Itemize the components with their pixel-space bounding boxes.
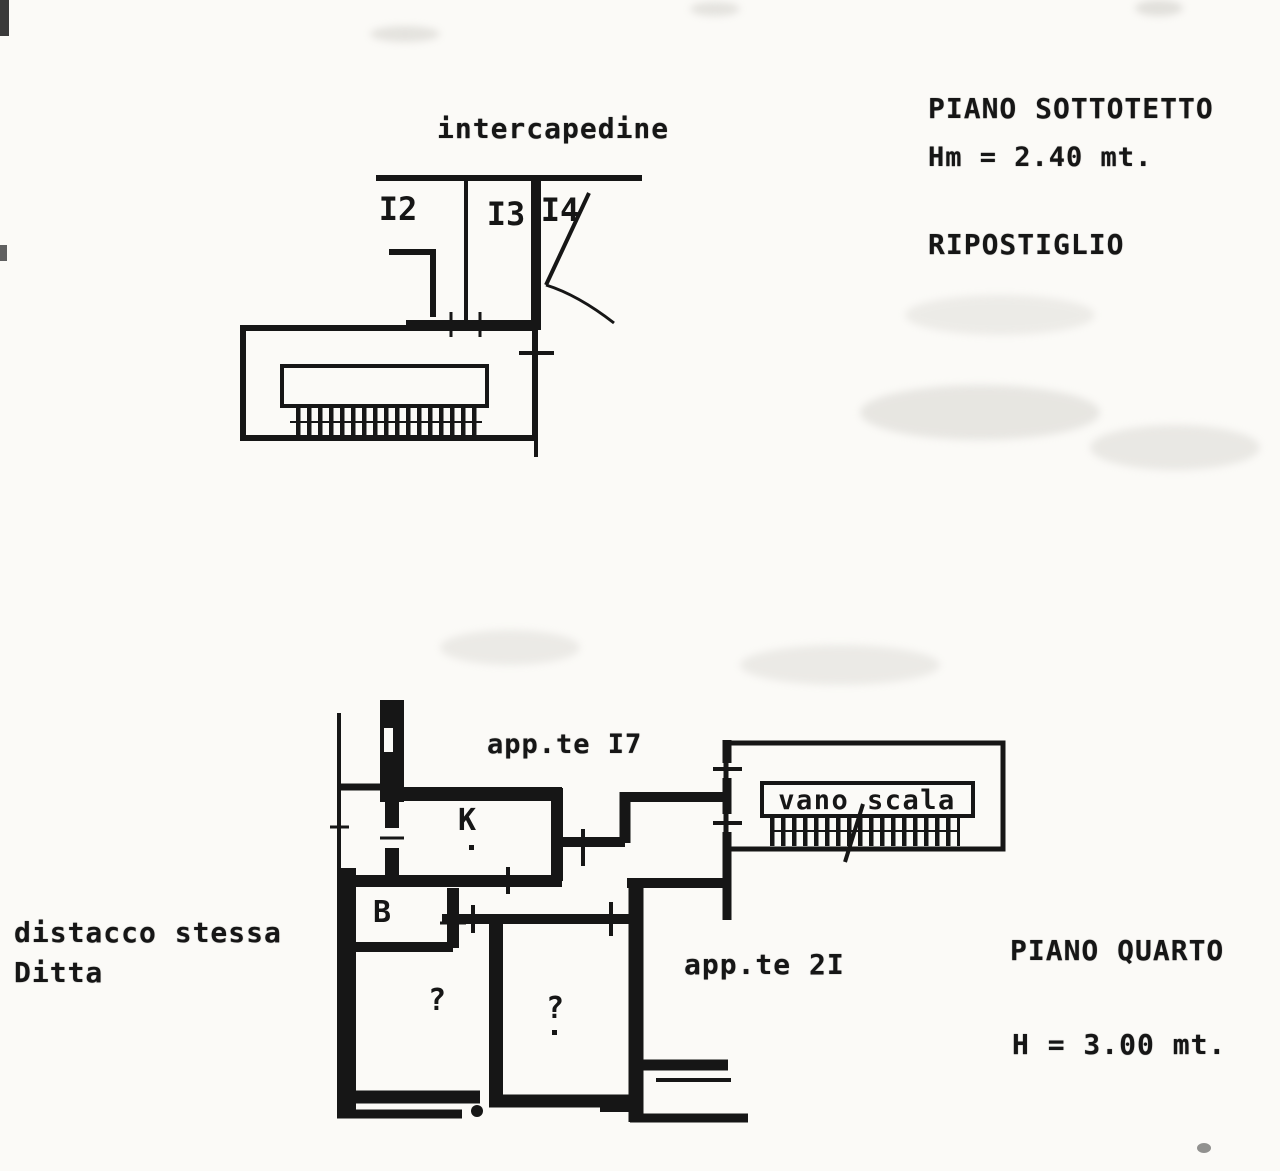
- scan-smudge: [690, 2, 740, 16]
- ripostiglio-label: RIPOSTIGLIO: [928, 228, 1124, 261]
- compartment-label-i3: I3: [487, 195, 526, 233]
- stairwell-block: [243, 328, 536, 457]
- room-label-unknown1: ?: [428, 983, 446, 1018]
- scan-speck: [1197, 1143, 1211, 1153]
- scan-smudge: [370, 26, 440, 42]
- interior-walls: [389, 252, 536, 324]
- margin-note-line2: Ditta: [14, 956, 103, 989]
- scan-smudge: [860, 385, 1100, 440]
- quarto-floor-plan: vano scala K B ? ?: [330, 690, 1020, 1170]
- margin-note-line1: distacco stessa: [14, 916, 282, 949]
- threshold-dot: [471, 1105, 483, 1117]
- stairwell-label: vano scala: [778, 785, 956, 816]
- intercapedine-label: intercapedine: [437, 112, 669, 145]
- room-label-kitchen: K: [458, 803, 476, 838]
- balcony-stub-walls: [630, 1065, 748, 1118]
- scan-smudge: [1090, 425, 1260, 470]
- lower-floor-height: H = 3.00 mt.: [1012, 1028, 1226, 1061]
- scan-smudge: [905, 295, 1095, 335]
- scan-edge-mark: [0, 245, 7, 261]
- compartment-labels: I2 I3 I4: [379, 190, 580, 233]
- upper-floor-height: Hm = 2.40 mt.: [928, 142, 1152, 173]
- scan-smudge: [1135, 0, 1183, 16]
- scan-edge-mark: [0, 0, 9, 36]
- lower-floor-title: PIANO QUARTO: [1010, 934, 1224, 967]
- room-label-unknown2: ?: [546, 991, 564, 1026]
- stairwell-block: vano scala: [726, 743, 1003, 862]
- compartment-label-i4: I4: [541, 191, 580, 229]
- room-label-bathroom: B: [373, 895, 391, 930]
- kitchen-walls: [350, 788, 562, 882]
- corridor-step-walls: [562, 792, 728, 883]
- scanned-floorplan-page: intercapedine PIANO SOTTOTETTO Hm = 2.40…: [0, 0, 1280, 1171]
- sottotetto-floor-plan: I2 I3 I4: [230, 165, 650, 465]
- scan-smudge: [740, 645, 940, 685]
- scan-smudge: [440, 630, 580, 665]
- upper-floor-title: PIANO SOTTOTETTO: [928, 92, 1214, 125]
- compartment-label-i2: I2: [379, 190, 418, 228]
